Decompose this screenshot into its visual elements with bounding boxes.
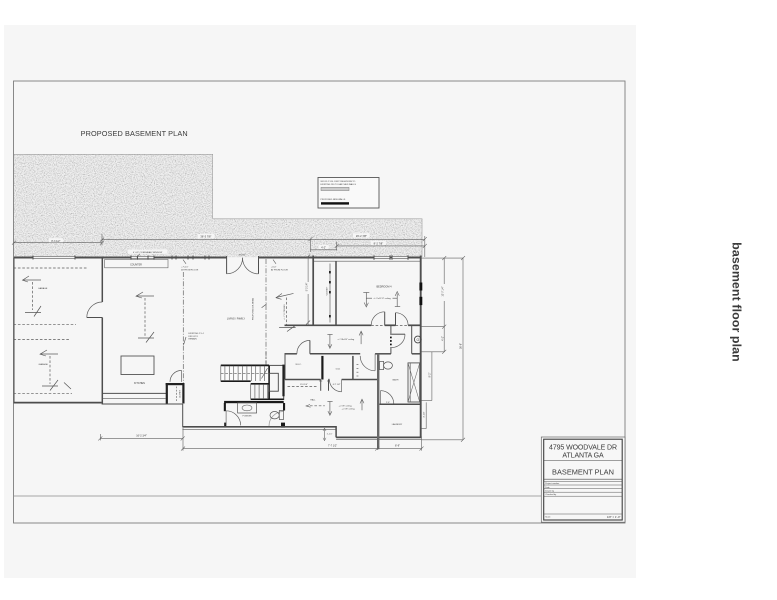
svg-text:POWDER: POWDER [243,416,253,418]
svg-text:AT FROM FLOOR: AT FROM FLOOR [181,268,198,271]
svg-text:ATLANTA GA: ATLANTA GA [562,453,604,460]
svg-text:4'-2": 4'-2" [441,336,444,341]
svg-text:16'-2 3/4": 16'-2 3/4" [136,434,147,437]
svg-text:+/- 5'8" ceiling: +/- 5'8" ceiling [342,409,356,411]
svg-text:4'-1/2": 4'-1/2" [424,411,426,417]
svg-text:Scale: Scale [545,517,551,519]
svg-text:FIR 24 TO: FIR 24 TO [189,336,199,338]
svg-text:WOOD 2 X10 JOIST RELATIONS TO: WOOD 2 X10 JOIST RELATIONS TO [321,180,356,183]
svg-text:26'-2 7/8": 26'-2 7/8" [356,234,367,238]
svg-text:1'-1.5": 1'-1.5" [327,434,333,436]
svg-text:+/- 9'x13' 8" ceiling: +/- 9'x13' 8" ceiling [373,298,391,300]
svg-text:8'-2 7/8": 8'-2 7/8" [374,241,384,245]
svg-text:10'-7 1/4": 10'-7 1/4" [441,286,444,296]
svg-text:36'-8": 36'-8" [459,343,462,349]
svg-text:+0'-0": +0'-0" [271,266,277,268]
svg-text:LIVING / FAMILY: LIVING / FAMILY [227,318,246,321]
svg-text:PROPOSED BASEMENT PLAN: PROPOSED BASEMENT PLAN [81,129,188,138]
svg-text:+/- 5'8" ceiling: +/- 5'8" ceiling [339,406,353,408]
svg-text:AT FROM FLOOR: AT FROM FLOOR [271,268,288,271]
svg-text:W.I.C.: W.I.C. [296,364,302,366]
svg-text:+7'-0.5": +7'-0.5" [181,266,188,268]
svg-text:PROPOSED LVL BEAM: PROPOSED LVL BEAM [252,298,255,321]
svg-text:8'-3 1/4": 8'-3 1/4" [300,384,308,386]
svg-text:Drawn by: Drawn by [545,489,555,492]
svg-text:HALL: HALL [310,399,316,402]
svg-text:EXISTING 2X6 TO HATCHED WALLS: EXISTING 2X6 TO HATCHED WALLS [321,183,357,186]
svg-text:COUNTER: COUNTER [130,263,142,266]
svg-text:7'-7 1/2": 7'-7 1/2" [328,444,337,447]
svg-text:4795 WOODVALE DR: 4795 WOODVALE DR [549,444,617,451]
svg-text:9'-2 1/4": 9'-2 1/4" [307,283,309,292]
svg-text:1/8" = 1'-0": 1/8" = 1'-0" [607,515,621,519]
svg-text:36'-3 7/8": 36'-3 7/8" [200,235,211,239]
svg-text:BEDROOM 4: BEDROOM 4 [376,286,392,289]
svg-text:PROPOSED NEW WALLS: PROPOSED NEW WALLS [321,198,346,201]
svg-text:+/- 7'-9" CEILING: +/- 7'-9" CEILING [284,304,286,320]
svg-text:Project number: Project number [545,482,559,485]
svg-text:REMAIN: REMAIN [189,338,198,341]
svg-text:9'-2": 9'-2" [428,372,431,377]
svg-text:GARAGE: GARAGE [39,363,49,366]
svg-text:4'-2": 4'-2" [321,246,326,249]
svg-text:GARAGE: GARAGE [38,287,48,290]
svg-text:BATH: BATH [393,379,399,382]
svg-text:8'-9": 8'-9" [395,444,400,447]
svg-text:KITCHEN: KITCHEN [134,382,145,385]
svg-text:CLOSET: CLOSET [327,286,329,295]
svg-text:LAUNDRY: LAUNDRY [392,423,403,426]
svg-text:G: G [416,338,419,342]
svg-text:CLOSET: CLOSET [180,389,182,398]
svg-text:BASEMENT PLAN: BASEMENT PLAN [552,467,614,476]
svg-text:Checked by: Checked by [545,494,557,496]
svg-text:8'-3 1/2": 8'-3 1/2" [51,240,60,243]
svg-text:4' 4.5" OVERHEAD WINDOW: 4' 4.5" OVERHEAD WINDOW [133,251,163,254]
svg-text:6'-7 1/4": 6'-7 1/4" [333,384,341,386]
svg-text:B 2'30": B 2'30" [239,254,246,256]
svg-text:basement floor plan: basement floor plan [730,242,744,362]
svg-text:+/- 5'8x3'6" ceiling: +/- 5'8x3'6" ceiling [337,339,355,341]
svg-text:EXISTING 2 X 4: EXISTING 2 X 4 [189,333,205,335]
